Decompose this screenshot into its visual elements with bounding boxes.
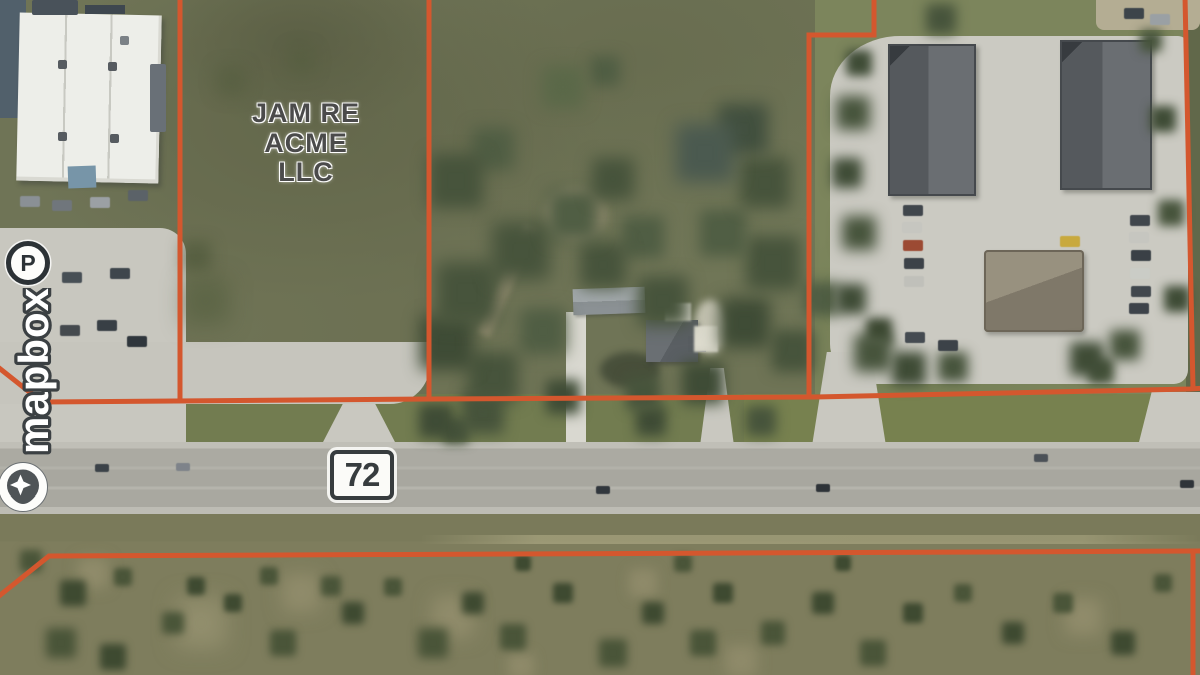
parcel-owner-label: JAM RE ACME LLC	[230, 99, 382, 188]
parcel-boundary[interactable]	[0, 551, 1200, 600]
parking-marker[interactable]: P	[6, 241, 50, 285]
parcel-boundary[interactable]	[809, 0, 874, 397]
parcel-owner-line1: JAM RE	[230, 99, 382, 129]
parcel-owner-line3: LLC	[230, 158, 382, 188]
route-number: 72	[345, 456, 380, 494]
mapbox-wordmark[interactable]: mapbox	[10, 288, 57, 454]
parking-marker-label: P	[20, 250, 35, 277]
satellite-map-canvas[interactable]: JAM RE ACME LLC 72 P mapbox	[0, 0, 1200, 675]
parcel-owner-line2: ACME	[230, 129, 382, 159]
route-shield: 72	[330, 450, 394, 500]
parcel-boundary[interactable]	[1185, 0, 1193, 389]
mapbox-attribution[interactable]: mapbox	[0, 288, 72, 458]
mapbox-logo-icon[interactable]	[0, 462, 52, 516]
parcel-boundary-lines[interactable]	[0, 0, 1200, 675]
